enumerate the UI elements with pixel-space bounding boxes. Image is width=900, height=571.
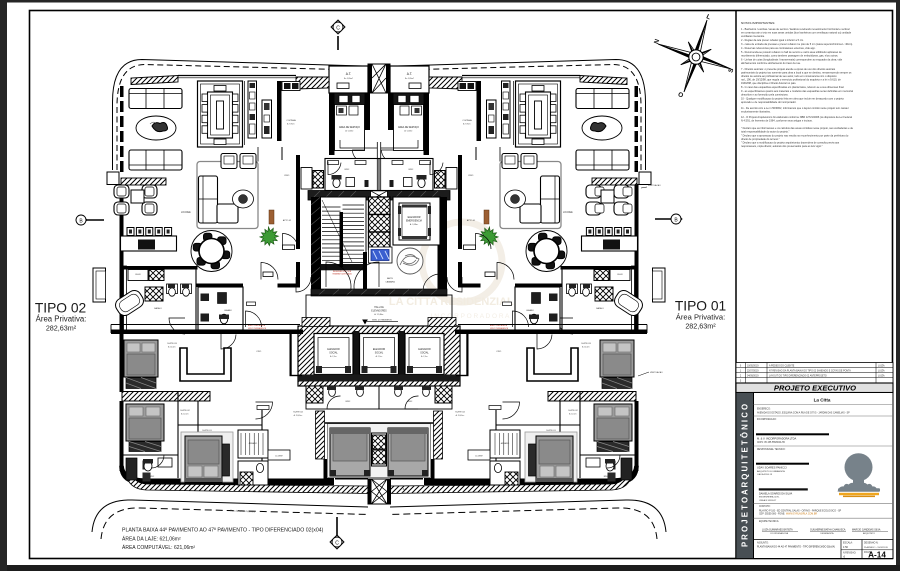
svg-text:APTO 01: APTO 01 <box>467 219 476 222</box>
svg-text:A: 12,48m²: A: 12,48m² <box>374 313 384 316</box>
svg-text:LUIZA: LUIZA <box>878 369 885 372</box>
svg-text:CIRC.: CIRC. <box>256 351 262 353</box>
svg-text:GUILHERME BATHA CHAMUSCA: GUILHERME BATHA CHAMUSCA <box>810 528 846 531</box>
svg-text:PROJETO EXECUTIVO: PROJETO EXECUTIVO <box>774 384 856 393</box>
svg-text:APTO 02: APTO 02 <box>283 219 292 222</box>
svg-text:CAMARA: CAMARA <box>385 281 395 284</box>
svg-text:LAVABO: LAVABO <box>224 309 232 312</box>
svg-text:A PEDIDO DO CLIENTE: A PEDIDO DO CLIENTE <box>769 364 795 367</box>
svg-text:CIRC.: CIRC. <box>284 175 290 177</box>
svg-text:04/09/2019: 04/09/2019 <box>747 375 759 377</box>
svg-text:BWC: BWC <box>408 401 413 403</box>
svg-text:A.T.: A.T. <box>403 487 408 491</box>
svg-text:N REVISAO:: N REVISAO: <box>843 551 857 554</box>
svg-text:LA CITTA RESIDENZIALE: LA CITTA RESIDENZIALE <box>389 296 521 308</box>
svg-text:LUIZA: LUIZA <box>878 364 885 367</box>
svg-text:DESENHO N:: DESENHO N: <box>864 542 879 544</box>
svg-text:COZINHA: COZINHA <box>462 119 472 122</box>
svg-text:CONTATO:: CONTATO: <box>759 505 771 508</box>
svg-text:direito de propriedade do terr: direito de propriedade do terreno." <box>741 137 780 141</box>
svg-text:5 - Recomenda-se possuir rebai: 5 - Recomenda-se possuir rebaixo no hall… <box>741 50 842 54</box>
svg-text:SUITE 01: SUITE 01 <box>202 430 212 432</box>
svg-text:" Declaro que a modificacao do: " Declaro que a modificacao do projeto a… <box>741 141 840 145</box>
svg-text:ventilacao mecanica.: ventilacao mecanica. <box>741 34 765 38</box>
svg-text:VENTILACAO: VENTILACAO <box>648 184 661 187</box>
svg-text:A: 2,2m²: A: 2,2m² <box>402 492 409 495</box>
svg-text:22/07/2019: 22/07/2019 <box>747 370 759 372</box>
svg-text:A: 5,58m²: A: 5,58m² <box>404 130 413 133</box>
svg-text:PLANTA BAIXA 44º PAVIMENTO AO: PLANTA BAIXA 44º PAVIMENTO AO 47º PAVIME… <box>122 528 324 534</box>
svg-text:BWC: BWC <box>150 476 155 478</box>
svg-text:A: 2,2m²: A: 2,2m² <box>421 355 428 358</box>
svg-text:LOUNGE: LOUNGE <box>181 212 191 214</box>
svg-text:COZINHA: COZINHA <box>286 119 296 122</box>
svg-text:1 - Banheiros / escritas / are: 1 - Banheiros / escritas / areas de serv… <box>741 27 850 31</box>
svg-text:CL.DESP.: CL.DESP. <box>275 456 283 458</box>
svg-text:SOCIAL: SOCIAL <box>375 352 384 355</box>
svg-text:SOCIAL: SOCIAL <box>329 352 338 355</box>
svg-text:MARCIO CANDEIAS SILVA: MARCIO CANDEIAS SILVA <box>852 528 881 531</box>
svg-text:A: 14,6m²: A: 14,6m² <box>582 346 590 349</box>
svg-text:2 - Regiao da tela prever reba: 2 - Regiao da tela prever rebaixo igual … <box>741 38 804 42</box>
svg-text:BWC: BWC <box>345 169 350 171</box>
svg-text:recebimento diferenciado, como: recebimento diferenciado, como tambem pa… <box>741 54 839 58</box>
svg-text:A: 9,95m²: A: 9,95m² <box>287 123 295 126</box>
svg-text:N 4.591, de fevereiro de 1964,: N 4.591, de fevereiro de 1964, conforme … <box>741 119 813 123</box>
svg-text:A: 3,48m²: A: 3,48m² <box>410 223 419 226</box>
svg-text:BWC: BWC <box>409 169 414 171</box>
svg-text:A: 14,6m²: A: 14,6m² <box>168 346 176 349</box>
svg-text:Área Privativa:: Área Privativa: <box>676 313 725 322</box>
svg-text:SUITE 03: SUITE 03 <box>581 343 591 345</box>
svg-text:DANIELA SOARES DA SILVA: DANIELA SOARES DA SILVA <box>759 492 792 495</box>
svg-text:UDAY SOARES PANICCI: UDAY SOARES PANICCI <box>757 465 787 469</box>
svg-text:ASSUNTO:: ASSUNTO: <box>757 541 769 544</box>
svg-text:alinhamentos conforme alinhame: alinhamentos conforme alinhamento do tra… <box>741 61 801 65</box>
svg-text:RESERVATORIO SOB: RESERVATORIO SOB <box>333 270 352 273</box>
svg-text:7 - Direitos autorais: o prese: 7 - Direitos autorais: o presente projet… <box>741 67 836 71</box>
svg-text:SOCIAL: SOCIAL <box>420 352 429 355</box>
svg-text:ELEVADOR: ELEVADOR <box>327 348 340 351</box>
svg-text:AREA DE SERVIÇO: AREA DE SERVIÇO <box>339 126 360 129</box>
svg-text:exclusivamente ilustrativo.: exclusivamente ilustrativo. <box>741 110 771 114</box>
svg-text:A.T.: A.T. <box>407 72 413 76</box>
svg-text:DESENHISTA: DESENHISTA <box>820 532 834 535</box>
svg-text:LUIZA: LUIZA <box>878 374 885 377</box>
svg-text:BWC: BWC <box>604 476 609 478</box>
svg-text:A: 15,43m²: A: 15,43m² <box>294 414 303 417</box>
svg-text:SUITE 02: SUITE 02 <box>568 410 578 412</box>
svg-text:BANHO: BANHO <box>596 307 604 310</box>
svg-text:282,63m²: 282,63m² <box>46 324 77 333</box>
svg-text:BANHO: BANHO <box>154 307 162 310</box>
svg-text:A: 2,2m²: A: 2,2m² <box>376 355 383 358</box>
svg-text:A-14: A-14 <box>868 551 886 560</box>
svg-text:4 - Reservas referencias para: 4 - Reservas referencias para as contrat… <box>741 46 816 50</box>
svg-text:na L 196, de 19/12/98, que reg: na L 196, de 19/12/98, que regula o exer… <box>741 78 841 82</box>
svg-text:A: 4,05m²: A: 4,05m² <box>405 77 414 80</box>
svg-text:LOUNGE: LOUNGE <box>563 212 573 214</box>
svg-text:COORDENADORA: COORDENADORA <box>770 532 789 535</box>
svg-text:NIVEL DO PAVIMENTO: NIVEL DO PAVIMENTO <box>372 319 393 322</box>
svg-text:1:50: 1:50 <box>843 546 848 549</box>
svg-text:CNPJ: 05.155.555/0001-55: CNPJ: 05.155.555/0001-55 <box>757 442 786 444</box>
svg-text:CHUV.: CHUV. <box>617 274 623 276</box>
svg-text:A: 2,2m²: A: 2,2m² <box>330 355 337 358</box>
svg-text:CAU A 5555-13: CAU A 5555-13 <box>757 473 773 476</box>
svg-text:ENGENHEIRA CIVIL: ENGENHEIRA CIVIL <box>759 496 780 499</box>
svg-text:La Citta: La Citta <box>814 398 831 403</box>
svg-text:C: C <box>335 541 339 547</box>
svg-text:NOTAS IMPORTANTES:: NOTAS IMPORTANTES: <box>741 21 775 25</box>
svg-text:LAVABO: LAVABO <box>526 309 534 312</box>
svg-text:ELEVADORES: ELEVADORES <box>371 310 387 313</box>
svg-text:BWC: BWC <box>346 401 351 403</box>
svg-text:ÁREA COMPUTÁVEL: 621,06m²: ÁREA COMPUTÁVEL: 621,06m² <box>122 544 195 551</box>
svg-text:6 - Linhas de cotas (longitudi: 6 - Linhas de cotas (longitudinais / tra… <box>741 58 843 62</box>
svg-text:A: 15,43m²: A: 15,43m² <box>456 414 465 417</box>
svg-text:SUITE 04: SUITE 04 <box>293 412 303 414</box>
svg-text:A: 5,58m²: A: 5,58m² <box>345 130 354 133</box>
svg-text:ARMARIO: ARMARIO <box>249 442 258 445</box>
svg-text:3 - caixa de entrada da pressa: 3 - caixa de entrada da pressao e prever… <box>741 42 853 46</box>
svg-text:C: C <box>336 26 340 32</box>
svg-text:SUITE 04: SUITE 04 <box>455 412 465 414</box>
svg-text:A.T.: A.T. <box>352 487 357 491</box>
svg-text:A: 12,5m²: A: 12,5m² <box>181 413 189 416</box>
svg-text:ENDERECO:: ENDERECO: <box>757 408 771 410</box>
svg-text:P R O J E T O A R Q U I T E T: P R O J E T O A R Q U I T E T Ô N I C O <box>741 404 750 547</box>
svg-text:A.T.: A.T. <box>346 72 352 76</box>
svg-text:RUA RIO P 100 - ED CENTRAL SAL: RUA RIO P 100 - ED CENTRAL SALAS - OITAV… <box>759 509 842 512</box>
svg-text:M. & V. INCORPORADORA LTDA: M. & V. INCORPORADORA LTDA <box>757 436 796 440</box>
svg-text:11 - De acordo com a Lei n 503: 11 - De acordo com a Lei n 5036/02, info… <box>741 106 849 110</box>
svg-text:TIPO 01: TIPO 01 <box>675 299 726 314</box>
svg-text:AT REVISAO DA PLANTA BAIXA DO: AT REVISAO DA PLANTA BAIXA DO TIPO 02 SA… <box>769 369 851 372</box>
svg-text:RESPONSAVEL TECNICO:: RESPONSAVEL TECNICO: <box>757 448 786 451</box>
svg-text:ARQUITETO: ARQUITETO <box>863 532 875 535</box>
svg-text:CIRC.: CIRC. <box>496 351 502 353</box>
svg-text:EQUIPE TECNICA:: EQUIPE TECNICA: <box>759 520 779 523</box>
svg-text:PATAMAR DA ESCADA: PATAMAR DA ESCADA <box>332 273 352 276</box>
svg-text:A: 2,2m²: A: 2,2m² <box>351 492 358 495</box>
svg-text:INCORPORACAO:: INCORPORACAO: <box>757 418 777 421</box>
svg-text:HALL DE: HALL DE <box>374 306 384 309</box>
svg-text:Área Privativa:: Área Privativa: <box>36 315 87 324</box>
svg-text:A: 4,05m²: A: 4,05m² <box>344 77 353 80</box>
svg-text:ESCALA:: ESCALA: <box>843 541 853 544</box>
svg-text:TIPO 02: TIPO 02 <box>35 301 86 316</box>
svg-text:em ceramica ate o teto em suas: em ceramica ate o teto em suas areas umi… <box>741 31 852 35</box>
svg-text:total responsabilidade do auto: total responsabilidade do autor do proje… <box>741 130 790 134</box>
svg-text:10/05/2019: 10/05/2019 <box>747 365 759 367</box>
svg-text:CHUV.: CHUV. <box>135 274 141 276</box>
svg-text:VENTILACAO: VENTILACAO <box>650 371 663 374</box>
svg-text:10 - Qualquer modificacao do p: 10 - Qualquer modificacao do projeto fei… <box>741 97 844 101</box>
svg-text:ARMARIO: ARMARIO <box>501 442 510 445</box>
svg-text:SUITE 01: SUITE 01 <box>546 430 556 432</box>
svg-text:LUIZA GUIMARAES BATISTA: LUIZA GUIMARAES BATISTA <box>762 528 793 531</box>
svg-text:19/02/98, que disciplina o Dir: 19/02/98, que disciplina o Direito Autor… <box>741 81 797 85</box>
svg-text:SUITE 02: SUITE 02 <box>180 410 190 412</box>
svg-text:patrimoniais do projeto tao so: patrimoniais do projeto tao somente para… <box>741 71 852 75</box>
svg-text:EMERGENCIA: EMERGENCIA <box>406 220 422 223</box>
svg-text:8 - In caso das esquadrias esp: 8 - In caso das esquadrias especificadas… <box>741 85 844 89</box>
svg-text:" Declaro que a aprovacao do p: " Declaro que a aprovacao do projeto nao… <box>741 134 849 138</box>
svg-text:A: 12,5m²: A: 12,5m² <box>569 413 577 416</box>
svg-text:SUITE 03: SUITE 03 <box>167 343 177 345</box>
svg-text:direitos de autoria ao profiss: direitos de autoria ao profissional de s… <box>741 74 837 78</box>
svg-text:12 - O Projeto Arquitetonico f: 12 - O Projeto Arquitetonico foi elabora… <box>741 115 852 119</box>
svg-text:PLANTA BAIXA DO 44 AO 47 PAVIM: PLANTA BAIXA DO 44 AO 47 PAVIMENTO - TIP… <box>757 546 835 549</box>
svg-text:aprovado e de responsabilidade: aprovado e de responsabilidade do incorp… <box>741 100 797 104</box>
svg-text:ELEVADOR: ELEVADOR <box>373 348 386 351</box>
svg-text:AREA DE SERVIÇO: AREA DE SERVIÇO <box>398 126 419 129</box>
svg-text:A: 9,95m²: A: 9,95m² <box>463 123 471 126</box>
svg-text:AVENIDA DO ESTADO, ESQUINA CO: AVENIDA DO ESTADO, ESQUINA COM A RUA DE … <box>757 411 850 414</box>
svg-text:CL.DESP.: CL.DESP. <box>475 456 483 458</box>
svg-text:ARQUITETO E URBANISTA: ARQUITETO E URBANISTA <box>757 470 785 473</box>
svg-text:ÁREA DA LAJE: 621,06m²: ÁREA DA LAJE: 621,06m² <box>122 536 181 543</box>
svg-text:CREA N 5555517: CREA N 5555517 <box>759 499 777 502</box>
svg-text:ANTE: ANTE <box>387 277 393 280</box>
svg-text:WWW.SYRLASIRLA.COM.BR: WWW.SYRLASIRLA.COM.BR <box>786 513 817 516</box>
svg-text:9 - as especificacoes quanto a: 9 - as especificacoes quanto aos materia… <box>741 89 853 93</box>
svg-text:LAYOUT DO TIPO DIFERENCIADO 02: LAYOUT DO TIPO DIFERENCIADO 02 ANTEPROJE… <box>769 374 827 377</box>
svg-text:descritivo e ao fornecido pela: descritivo e ao fornecido pela construto… <box>741 93 789 97</box>
svg-text:CEP: 55555-000 - FONE:: CEP: 55555-000 - FONE: <box>759 514 785 516</box>
svg-text:responsaveis, copia direito; a: responsaveis, copia direito; autorais do… <box>741 144 823 148</box>
svg-text:" Declaro que as informacoes e: " Declaro que as informacoes e os calcul… <box>741 126 854 130</box>
svg-text:282,63m²: 282,63m² <box>685 322 716 331</box>
svg-text:CIRC.: CIRC. <box>468 175 474 177</box>
svg-text:ELEVADOR: ELEVADOR <box>418 348 431 351</box>
svg-text:PLANTA B 1 - 19/02/2019: PLANTA B 1 - 19/02/2019 <box>864 546 889 549</box>
